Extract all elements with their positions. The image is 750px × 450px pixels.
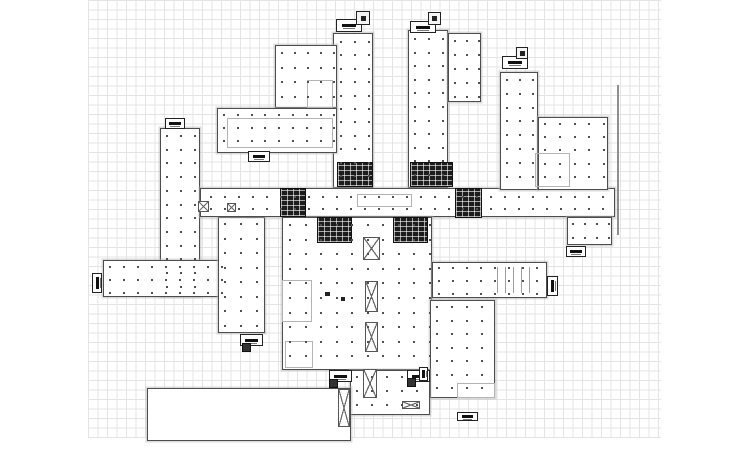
- column-dot: [588, 149, 590, 151]
- column-dot: [544, 163, 546, 165]
- column-dot: [306, 140, 308, 142]
- room-northwest-corner: [307, 80, 333, 108]
- column-dot: [354, 108, 356, 110]
- column-dot: [466, 320, 468, 322]
- stair-tag-west-end: [92, 273, 102, 293]
- column-dot: [382, 326, 384, 328]
- column-dot: [519, 107, 521, 109]
- column-dot: [416, 404, 418, 406]
- column-dot: [194, 231, 196, 233]
- column-dot: [490, 196, 492, 198]
- column-dot: [588, 136, 590, 138]
- column-dot: [340, 175, 342, 177]
- column-dot: [559, 123, 561, 125]
- column-dot: [398, 312, 400, 314]
- column-dot: [166, 245, 168, 247]
- column-dot: [522, 267, 524, 269]
- column-dot: [429, 224, 431, 226]
- roof-box-northeast: [516, 47, 528, 59]
- column-dot: [278, 140, 280, 142]
- column-dot: [438, 280, 440, 282]
- column-dot: [367, 326, 369, 328]
- column-dot: [351, 224, 353, 226]
- column-dot: [351, 268, 353, 270]
- column-dot: [382, 253, 384, 255]
- column-dot: [414, 92, 416, 94]
- column-dot: [602, 208, 604, 210]
- column-dot: [413, 341, 415, 343]
- column-dot: [224, 238, 226, 240]
- column-dot: [519, 120, 521, 122]
- column-dot: [166, 204, 168, 206]
- column-dot: [442, 38, 444, 40]
- column-dot: [574, 149, 576, 151]
- column-dot: [428, 52, 430, 54]
- exit-square-center-south: [242, 343, 251, 352]
- column-dot: [519, 134, 521, 136]
- column-dot: [336, 312, 338, 314]
- column-dot: [438, 293, 440, 295]
- stair-tag-southeast: [457, 412, 478, 421]
- column-dot: [522, 280, 524, 282]
- column-dot: [251, 114, 253, 116]
- column-dot: [386, 376, 388, 378]
- column-dot: [333, 52, 335, 54]
- column-dot: [436, 360, 438, 362]
- column-dot: [378, 196, 380, 198]
- column-dot: [180, 231, 182, 233]
- column-dot: [294, 67, 296, 69]
- column-dot: [305, 253, 307, 255]
- column-dot: [442, 79, 444, 81]
- building-mass-hall-south-west: [147, 388, 351, 441]
- column-dot: [166, 135, 168, 137]
- column-dot: [429, 355, 431, 357]
- roof-box-pip-icon: [520, 51, 525, 56]
- column-dot: [289, 282, 291, 284]
- column-dot: [292, 140, 294, 142]
- tag-bar-icon: [169, 122, 180, 125]
- column-dot: [333, 96, 335, 98]
- column-dot: [179, 292, 181, 294]
- column-dot: [368, 95, 370, 97]
- column-dot: [451, 374, 453, 376]
- column-dot: [466, 267, 468, 269]
- column-dot: [559, 149, 561, 151]
- column-dot: [194, 176, 196, 178]
- floor-plan-canvas[interactable]: [0, 0, 750, 450]
- column-dot: [354, 148, 356, 150]
- column-dot: [223, 140, 225, 142]
- column-dot: [166, 258, 168, 260]
- column-dot: [398, 326, 400, 328]
- column-dot: [280, 208, 282, 210]
- column-dot: [256, 325, 258, 327]
- column-dot: [392, 208, 394, 210]
- column-dot: [428, 133, 430, 135]
- column-dot: [320, 341, 322, 343]
- column-dot: [436, 333, 438, 335]
- column-dot: [351, 355, 353, 357]
- column-dot: [306, 127, 308, 129]
- column-dot: [452, 280, 454, 282]
- column-dot: [401, 376, 403, 378]
- column-dot: [166, 272, 168, 274]
- column-dot: [504, 208, 506, 210]
- column-dot: [165, 292, 167, 294]
- column-dot: [336, 208, 338, 210]
- column-dot: [574, 208, 576, 210]
- column-dot: [546, 208, 548, 210]
- column-dot: [602, 196, 604, 198]
- column-dot: [351, 239, 353, 241]
- column-dot: [429, 268, 431, 270]
- column-dot: [289, 253, 291, 255]
- column-dot: [480, 293, 482, 295]
- tag-bar-icon: [342, 24, 357, 27]
- column-dot: [307, 81, 309, 83]
- column-dot: [442, 147, 444, 149]
- column-dot: [179, 266, 181, 268]
- column-dot: [603, 123, 605, 125]
- column-dot: [478, 82, 480, 84]
- column-dot: [180, 272, 182, 274]
- column-dot: [193, 279, 195, 281]
- column-dot: [194, 217, 196, 219]
- column-dot: [354, 41, 356, 43]
- column-dot: [305, 239, 307, 241]
- column-dot: [333, 81, 335, 83]
- column-dot: [371, 390, 373, 392]
- column-dot: [151, 266, 153, 268]
- column-dot: [322, 208, 324, 210]
- column-dot: [278, 127, 280, 129]
- column-dot: [137, 279, 139, 281]
- column-dot: [354, 135, 356, 137]
- column-dot: [354, 95, 356, 97]
- roof-box-wing-a: [356, 11, 370, 25]
- column-dot: [320, 224, 322, 226]
- column-dot: [320, 81, 322, 83]
- column-dot: [371, 376, 373, 378]
- column-dot: [221, 292, 223, 294]
- column-dot: [333, 67, 335, 69]
- column-dot: [506, 134, 508, 136]
- column-dot: [398, 297, 400, 299]
- column-dot: [532, 120, 534, 122]
- column-dot: [506, 79, 508, 81]
- column-dot: [281, 96, 283, 98]
- column-dot: [398, 341, 400, 343]
- column-dot: [166, 286, 168, 288]
- column-dot: [289, 297, 291, 299]
- column-dot: [336, 355, 338, 357]
- column-dot: [478, 40, 480, 42]
- column-dot: [406, 208, 408, 210]
- column-dot: [478, 54, 480, 56]
- column-dot: [382, 355, 384, 357]
- column-dot: [480, 267, 482, 269]
- column-dot: [281, 81, 283, 83]
- column-dot: [398, 253, 400, 255]
- column-dot: [506, 176, 508, 178]
- column-dot: [428, 79, 430, 81]
- column-dot: [180, 135, 182, 137]
- column-dot: [354, 175, 356, 177]
- column-dot: [264, 114, 266, 116]
- column-dot: [256, 223, 258, 225]
- column-dot: [504, 196, 506, 198]
- column-dot: [436, 387, 438, 389]
- column-dot: [490, 208, 492, 210]
- column-dot: [481, 360, 483, 362]
- column-dot: [123, 292, 125, 294]
- column-dot: [305, 312, 307, 314]
- column-dot: [544, 176, 546, 178]
- column-dot: [429, 297, 431, 299]
- column-dot: [481, 320, 483, 322]
- column-dot: [451, 333, 453, 335]
- column-dot: [281, 52, 283, 54]
- column-dot: [193, 292, 195, 294]
- column-dot: [392, 196, 394, 198]
- building-mass-wing-center-west: [218, 217, 265, 333]
- annotation-mark: [325, 292, 330, 296]
- column-dot: [416, 390, 418, 392]
- column-dot: [532, 148, 534, 150]
- column-dot: [340, 121, 342, 123]
- column-dot: [559, 176, 561, 178]
- column-dot: [137, 266, 139, 268]
- column-dot: [336, 341, 338, 343]
- column-dot: [179, 279, 181, 281]
- column-dot: [109, 279, 111, 281]
- column-dot: [166, 176, 168, 178]
- column-dot: [354, 68, 356, 70]
- column-dot: [442, 65, 444, 67]
- column-dot: [224, 267, 226, 269]
- column-dot: [367, 239, 369, 241]
- column-dot: [506, 93, 508, 95]
- column-dot: [382, 341, 384, 343]
- column-dot: [336, 239, 338, 241]
- column-dot: [294, 96, 296, 98]
- column-dot: [574, 123, 576, 125]
- column-dot: [532, 134, 534, 136]
- column-dot: [166, 149, 168, 151]
- column-dot: [240, 223, 242, 225]
- column-dot: [367, 341, 369, 343]
- column-dot: [180, 176, 182, 178]
- column-dot: [336, 282, 338, 284]
- column-dot: [436, 347, 438, 349]
- column-dot: [413, 239, 415, 241]
- column-dot: [414, 65, 416, 67]
- column-dot: [451, 360, 453, 362]
- column-dot: [278, 114, 280, 116]
- column-dot: [436, 374, 438, 376]
- column-dot: [368, 162, 370, 164]
- column-dot: [368, 54, 370, 56]
- column-dot: [466, 306, 468, 308]
- column-dot: [414, 120, 416, 122]
- column-dot: [307, 52, 309, 54]
- column-dot: [466, 333, 468, 335]
- column-dot: [151, 292, 153, 294]
- column-dot: [340, 148, 342, 150]
- reference-line: [617, 85, 619, 235]
- column-dot: [280, 196, 282, 198]
- column-dot: [436, 306, 438, 308]
- column-dot: [448, 208, 450, 210]
- column-dot: [466, 387, 468, 389]
- column-dot: [238, 196, 240, 198]
- column-dot: [382, 239, 384, 241]
- column-dot: [451, 387, 453, 389]
- column-dot: [305, 224, 307, 226]
- stair-tag-west-top: [165, 118, 185, 129]
- column-dot: [289, 239, 291, 241]
- column-dot: [506, 162, 508, 164]
- column-dot: [413, 282, 415, 284]
- column-dot: [413, 326, 415, 328]
- column-dot: [452, 267, 454, 269]
- tag-bar-icon: [253, 155, 265, 158]
- column-dot: [336, 196, 338, 198]
- column-dot: [506, 148, 508, 150]
- column-dot: [289, 224, 291, 226]
- column-dot: [351, 297, 353, 299]
- column-dot: [428, 92, 430, 94]
- column-dot: [546, 196, 548, 198]
- column-dot: [256, 281, 258, 283]
- column-dot: [382, 224, 384, 226]
- shaft-west-1-elevator-shaft: [198, 201, 209, 212]
- column-dot: [224, 325, 226, 327]
- column-dot: [414, 79, 416, 81]
- column-dot: [320, 96, 322, 98]
- column-dot: [180, 286, 182, 288]
- column-dot: [428, 174, 430, 176]
- column-dot: [398, 355, 400, 357]
- column-dot: [462, 208, 464, 210]
- stair-tag-south-edge: [419, 367, 428, 381]
- column-dot: [320, 52, 322, 54]
- column-dot: [224, 252, 226, 254]
- column-dot: [466, 360, 468, 362]
- column-dot: [305, 282, 307, 284]
- column-dot: [574, 196, 576, 198]
- column-dot: [166, 217, 168, 219]
- column-dot: [481, 306, 483, 308]
- column-dot: [294, 208, 296, 210]
- column-dot: [532, 176, 534, 178]
- column-dot: [252, 196, 254, 198]
- annotation-mark: [341, 297, 345, 301]
- column-dot: [476, 196, 478, 198]
- column-dot: [266, 196, 268, 198]
- column-dot: [367, 282, 369, 284]
- column-dot: [494, 267, 496, 269]
- column-dot: [442, 52, 444, 54]
- column-dot: [333, 114, 335, 116]
- column-dot: [351, 253, 353, 255]
- column-dot: [256, 252, 258, 254]
- column-dot: [414, 174, 416, 176]
- column-dot: [354, 81, 356, 83]
- column-dot: [333, 127, 335, 129]
- column-dot: [350, 196, 352, 198]
- room-southeast-step: [457, 383, 495, 398]
- column-dot: [588, 163, 590, 165]
- shaft-4-elevator-shaft: [363, 369, 377, 398]
- column-dot: [224, 310, 226, 312]
- column-dot: [240, 310, 242, 312]
- column-dot: [305, 355, 307, 357]
- column-dot: [289, 268, 291, 270]
- column-dot: [451, 320, 453, 322]
- column-dot: [340, 81, 342, 83]
- column-dot: [532, 208, 534, 210]
- column-dot: [413, 297, 415, 299]
- column-dot: [356, 404, 358, 406]
- stall-line: [497, 267, 498, 293]
- column-dot: [336, 297, 338, 299]
- column-dot: [584, 237, 586, 239]
- column-dot: [194, 245, 196, 247]
- column-dot: [194, 190, 196, 192]
- column-dot: [351, 312, 353, 314]
- column-dot: [508, 280, 510, 282]
- column-dot: [382, 268, 384, 270]
- column-dot: [210, 196, 212, 198]
- shaft-5-elevator-shaft: [338, 389, 350, 427]
- column-dot: [256, 310, 258, 312]
- column-dot: [454, 40, 456, 42]
- column-dot: [560, 208, 562, 210]
- column-dot: [481, 333, 483, 335]
- column-dot: [320, 239, 322, 241]
- column-dot: [519, 148, 521, 150]
- column-dot: [307, 67, 309, 69]
- column-dot: [166, 162, 168, 164]
- column-dot: [532, 162, 534, 164]
- column-dot: [320, 253, 322, 255]
- column-dot: [420, 208, 422, 210]
- core-wing-b: [410, 162, 453, 187]
- column-dot: [308, 196, 310, 198]
- column-dot: [264, 140, 266, 142]
- column-dot: [401, 390, 403, 392]
- column-dot: [518, 196, 520, 198]
- column-dot: [224, 208, 226, 210]
- column-dot: [224, 223, 226, 225]
- column-dot: [221, 279, 223, 281]
- column-dot: [398, 268, 400, 270]
- core-central-left: [317, 217, 352, 243]
- column-dot: [519, 176, 521, 178]
- column-dot: [442, 92, 444, 94]
- column-dot: [289, 355, 291, 357]
- column-dot: [574, 136, 576, 138]
- column-dot: [320, 268, 322, 270]
- column-dot: [428, 120, 430, 122]
- column-dot: [210, 208, 212, 210]
- column-dot: [240, 238, 242, 240]
- column-dot: [466, 68, 468, 70]
- column-dot: [544, 123, 546, 125]
- column-dot: [123, 266, 125, 268]
